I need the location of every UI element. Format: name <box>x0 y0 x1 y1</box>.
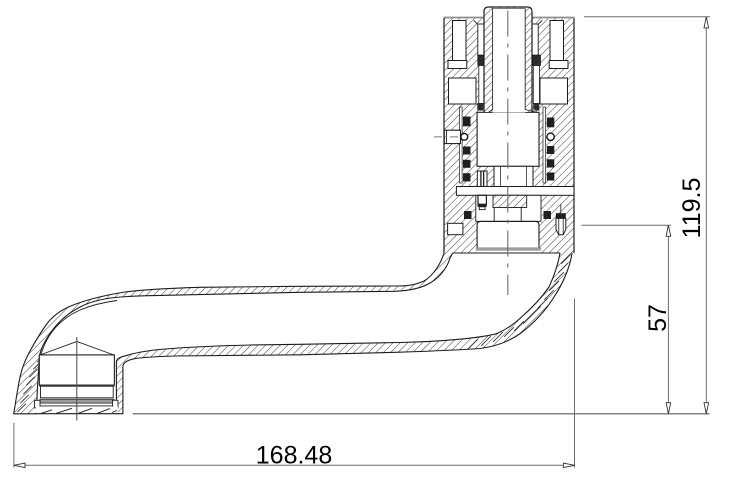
svg-text:119.5: 119.5 <box>678 178 706 239</box>
svg-text:57: 57 <box>644 304 672 332</box>
svg-text:168.48: 168.48 <box>256 442 332 470</box>
